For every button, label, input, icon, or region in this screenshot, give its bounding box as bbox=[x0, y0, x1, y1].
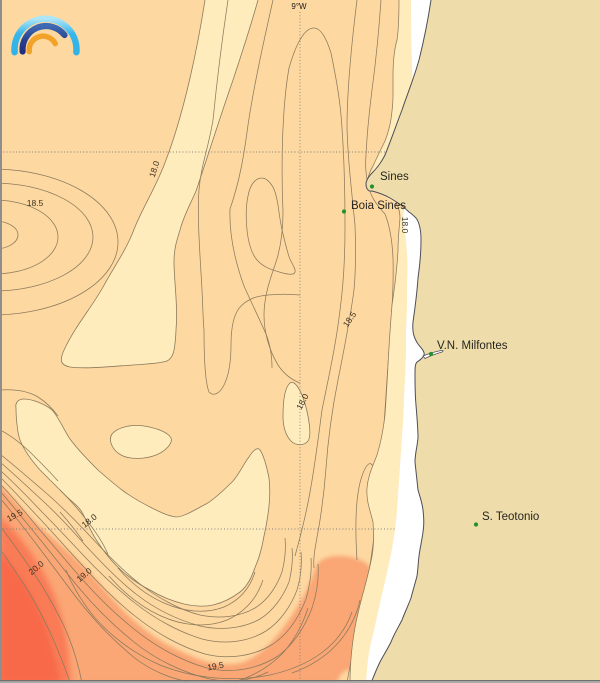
svg-text:18.0: 18.0 bbox=[400, 217, 410, 234]
svg-text:Boia Sines: Boia Sines bbox=[351, 200, 406, 212]
svg-text:S. Teotonio: S. Teotonio bbox=[482, 511, 539, 523]
svg-text:18.5: 18.5 bbox=[27, 198, 44, 208]
svg-text:V.N. Milfontes: V.N. Milfontes bbox=[437, 340, 508, 352]
svg-text:Sines: Sines bbox=[380, 171, 409, 183]
svg-text:9°W: 9°W bbox=[291, 2, 307, 11]
